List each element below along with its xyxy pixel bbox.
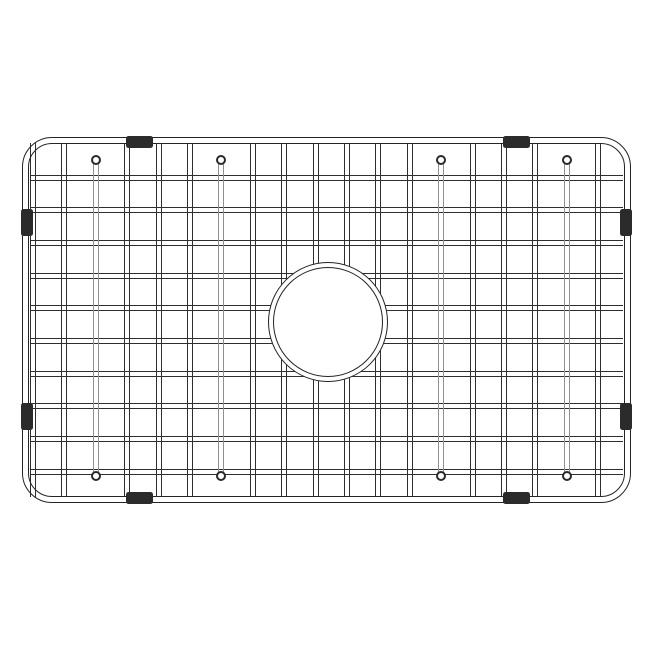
- bumper-top-right: [503, 136, 530, 148]
- bumper-left-upper: [21, 209, 33, 236]
- bumper-right-upper: [620, 209, 632, 236]
- bumper-top-left: [126, 136, 153, 148]
- bumper-bottom-right: [503, 492, 530, 504]
- bumper-right-lower: [620, 403, 632, 430]
- bumper-left-lower: [21, 403, 33, 430]
- bumper-bottom-left: [126, 492, 153, 504]
- sink-grid-illustration: [0, 0, 650, 650]
- drain-opening-inner-ring: [273, 267, 383, 377]
